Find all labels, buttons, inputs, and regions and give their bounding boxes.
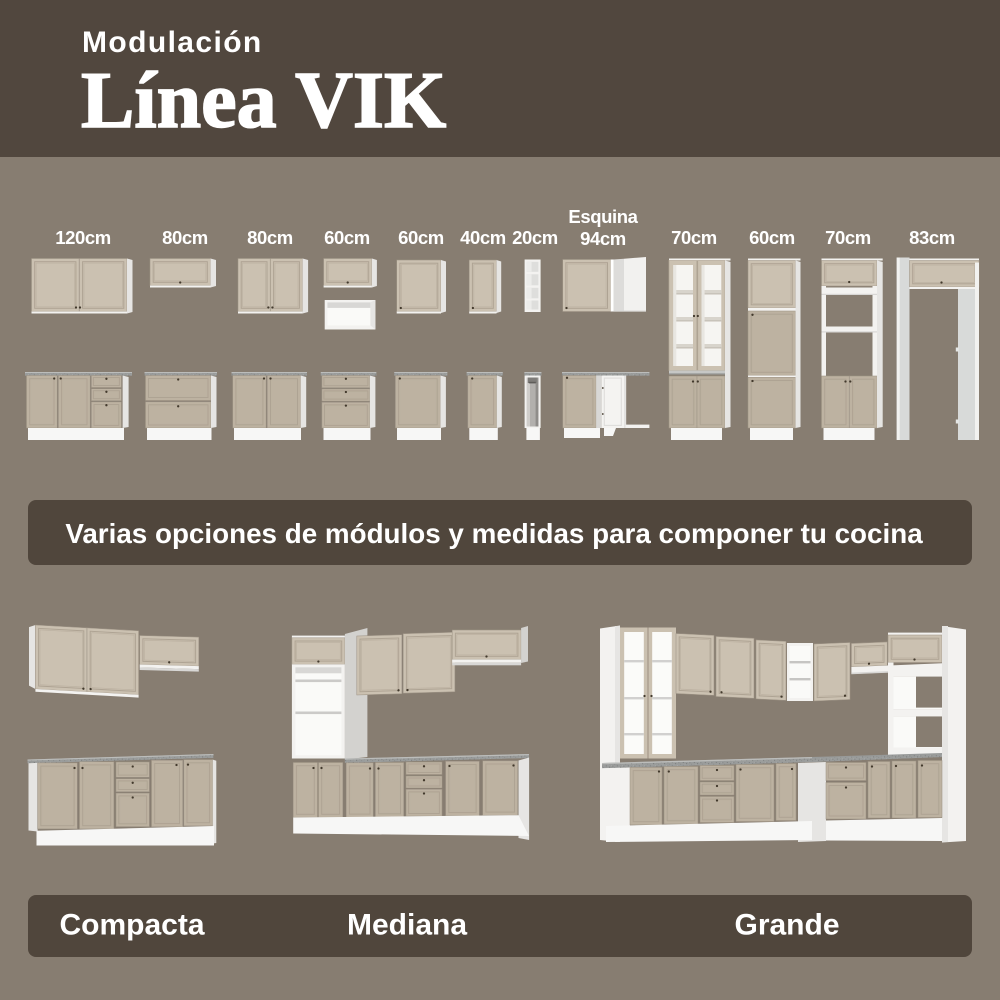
svg-text:120cm: 120cm [55,227,111,248]
svg-text:83cm: 83cm [909,227,955,248]
svg-text:70cm: 70cm [671,227,717,248]
svg-text:60cm: 60cm [324,227,370,248]
svg-text:20cm: 20cm [512,227,558,248]
svg-text:Mediana: Mediana [347,909,467,942]
svg-text:Grande: Grande [734,909,839,942]
svg-text:70cm: 70cm [825,227,871,248]
svg-text:Esquina: Esquina [568,206,638,227]
svg-text:60cm: 60cm [398,227,444,248]
svg-text:Varias opciones de módulos y m: Varias opciones de módulos y medidas par… [65,518,923,549]
svg-text:80cm: 80cm [247,227,293,248]
svg-text:94cm: 94cm [580,228,626,249]
svg-text:80cm: 80cm [162,227,208,248]
svg-text:Compacta: Compacta [59,909,204,942]
svg-text:60cm: 60cm [749,227,795,248]
svg-text:40cm: 40cm [460,227,506,248]
